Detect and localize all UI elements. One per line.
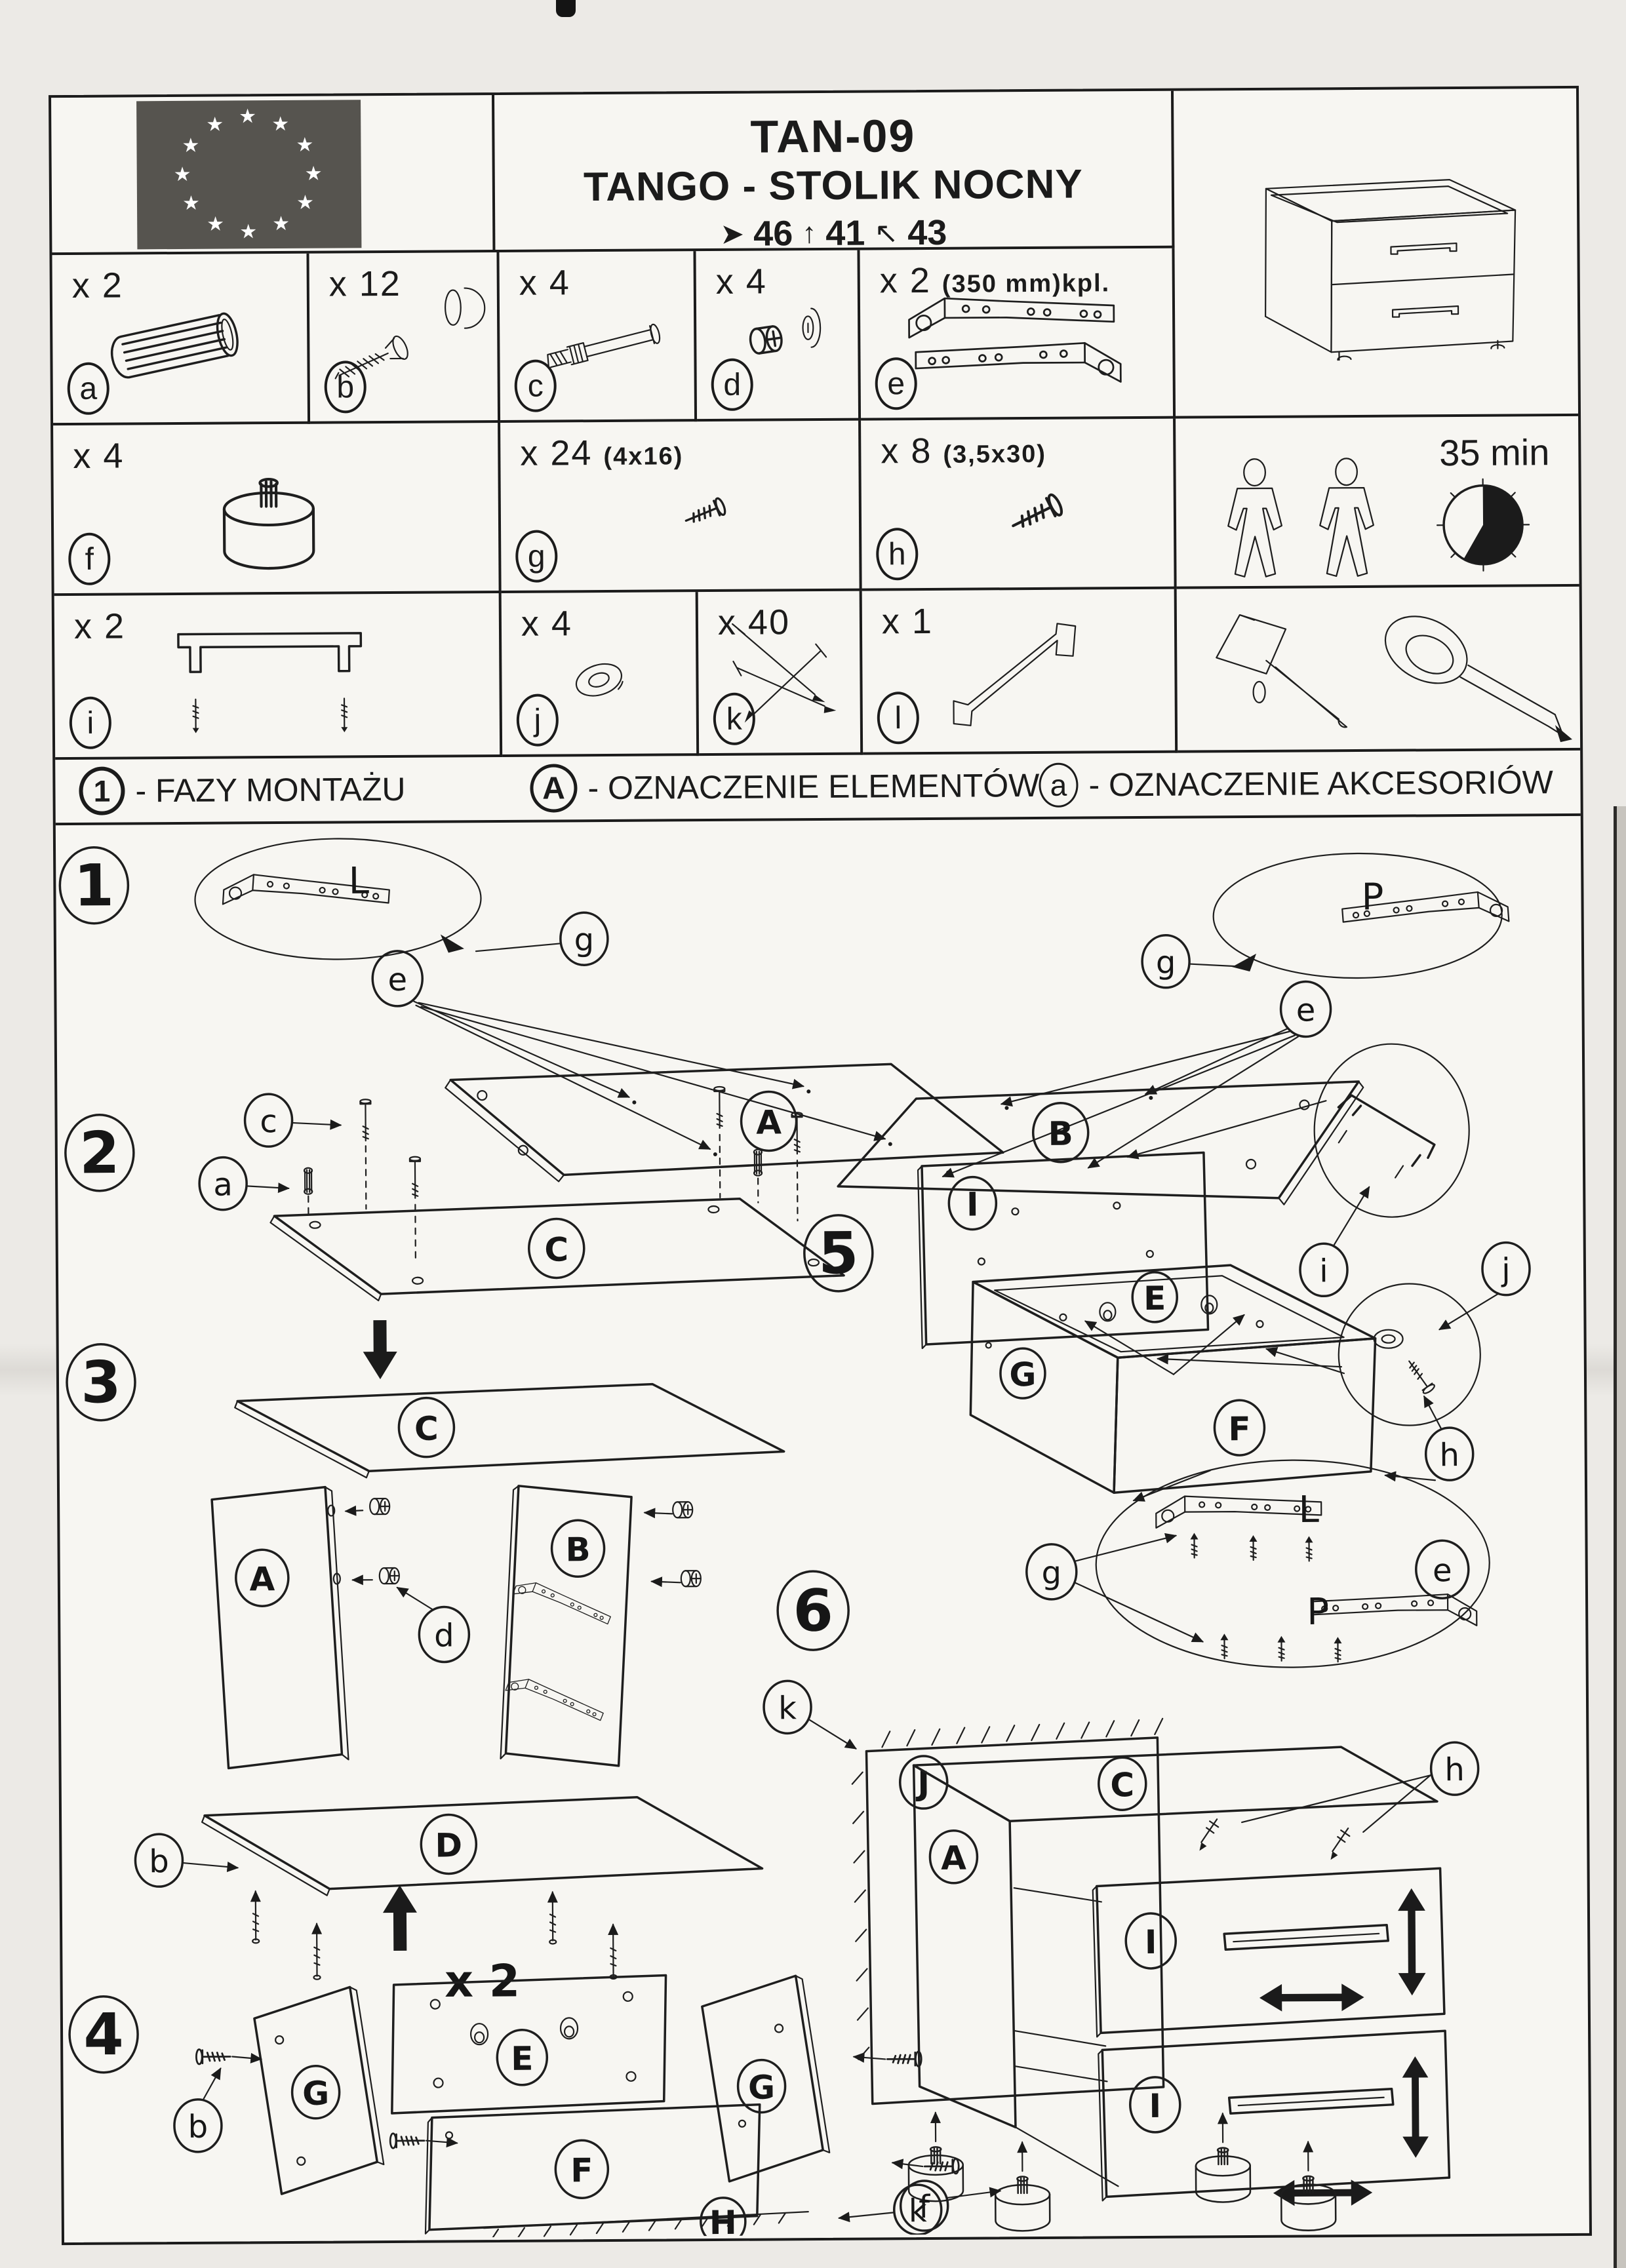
width-arrow-icon: ➤: [720, 217, 744, 250]
step-4: x 2 4 G E G: [69, 1953, 959, 2240]
hammer-screwdriver-icon: [1177, 587, 1581, 753]
eu-star-icon: ★: [239, 107, 256, 127]
panel-label-H: H: [709, 2204, 737, 2240]
legend-elements: A - OZNACZENIE ELEMENTÓW: [530, 754, 1039, 820]
eu-star-icon: ★: [296, 136, 313, 155]
effort-cell: 35 min: [1176, 416, 1579, 589]
foot-icon: [53, 423, 499, 595]
callout-b: b: [188, 2109, 208, 2145]
step-1-number: 1: [73, 851, 114, 919]
part-badge-g: g: [515, 530, 557, 582]
callout-a: a: [213, 1166, 233, 1203]
part-badge-c: c: [514, 359, 556, 412]
panel-label-G: G: [748, 2068, 775, 2106]
callout-e: e: [1296, 992, 1316, 1028]
depth-arrow-icon: ↖: [874, 216, 898, 250]
callout-h: h: [1439, 1437, 1459, 1474]
callout-d: d: [434, 1617, 454, 1654]
slide-mark-right: P: [1361, 876, 1383, 918]
part-cell-a: x 2 a: [52, 254, 310, 425]
eu-star-icon: ★: [174, 165, 191, 185]
eu-star-icon: ★: [305, 165, 323, 184]
panel-label-G: G: [1009, 1356, 1036, 1394]
step-1: 1 L e g A: [60, 832, 1511, 1212]
eu-star-icon: ★: [271, 115, 289, 134]
dimension-depth: 43: [907, 212, 947, 253]
callout-g: g: [1156, 945, 1176, 981]
eu-star-icon: ★: [207, 215, 224, 235]
product-image-cell: [1174, 88, 1578, 419]
callout-i: i: [1319, 1253, 1328, 1289]
callout-f: f: [919, 2189, 930, 2225]
panel-label-F: F: [570, 2151, 593, 2189]
callout-h: h: [1444, 1751, 1465, 1788]
callout-g: g: [1041, 1555, 1061, 1592]
eu-star-icon: ★: [206, 115, 224, 135]
scanned-instruction-page: ★ ★ ★ ★ ★ ★ ★ ★ ★ ★ ★ ★ TAN-09 TANGO - S…: [0, 0, 1626, 2268]
part-badge-l: l: [877, 692, 919, 744]
phase-symbol: 1: [79, 766, 125, 815]
step-6-number: 6: [793, 1576, 833, 1644]
step-3: 3 C A d: [66, 1318, 787, 1982]
panel-label-D: D: [435, 1826, 462, 1864]
part-cell-f: x 4 f: [53, 423, 502, 596]
product-title: TANGO - STOLIK NOCNY: [495, 161, 1172, 211]
legend-elements-label: - OZNACZENIE ELEMENTÓW: [587, 766, 1039, 807]
step-5: 5 I i j: [803, 1043, 1531, 1502]
panel-label-B: B: [1048, 1115, 1073, 1153]
panel-label-I: I: [1145, 1923, 1157, 1961]
element-symbol: A: [530, 764, 577, 812]
callout-e: e: [1433, 1552, 1452, 1589]
panel-label-A: A: [249, 1560, 275, 1598]
slide-detail: L P g e: [1026, 1459, 1490, 1669]
part-badge-k: k: [713, 693, 755, 745]
part-badge-d: d: [711, 359, 753, 411]
part-badge-i: i: [69, 697, 111, 749]
dimension-width: 46: [753, 213, 793, 254]
step-2: 2 c a: [65, 1086, 844, 1302]
logo-cell: ★ ★ ★ ★ ★ ★ ★ ★ ★ ★ ★ ★: [51, 95, 495, 255]
part-cell-k: x 40 k: [698, 591, 863, 756]
callout-e: e: [387, 962, 407, 998]
paper-edge-shade: [1617, 806, 1626, 2268]
part-cell-h: x 8 (3,5x30) h: [861, 419, 1177, 591]
callout-j: j: [1501, 1252, 1511, 1289]
step-3-number: 3: [81, 1348, 121, 1416]
panel-label-A: A: [756, 1103, 782, 1141]
slide-mark-left: L: [1298, 1489, 1319, 1531]
tools-cell: [1177, 587, 1581, 753]
part-cell-d: x 4 d: [696, 250, 861, 422]
part-cell-i: x 2 i: [54, 593, 503, 760]
instruction-sheet: ★ ★ ★ ★ ★ ★ ★ ★ ★ ★ ★ ★ TAN-09 TANGO - S…: [49, 86, 1592, 2245]
part-cell-l: x 1 l: [862, 589, 1178, 755]
accessory-symbol: a: [1039, 763, 1078, 808]
part-badge-f: f: [68, 533, 110, 585]
step-6: 6 k J C A h: [763, 1567, 1481, 2234]
dimension-height: 41: [825, 213, 865, 254]
step-2-number: 2: [79, 1119, 120, 1186]
panel-label-I: I: [1149, 2087, 1161, 2125]
slide-mark-right: P: [1307, 1591, 1329, 1633]
handle-icon: [54, 593, 500, 759]
scan-artifact: [556, 0, 576, 17]
part-cell-c: x 4 c: [499, 251, 697, 423]
part-cell-e: x 2 (350 mm)kpl. e: [860, 248, 1176, 421]
legend-row: 1 - FAZY MONTAŻU A - OZNACZENIE ELEMENTÓ…: [55, 751, 1581, 825]
title-cell: TAN-09 TANGO - STOLIK NOCNY ➤ 46 ↑ 41 ↖ …: [494, 91, 1174, 252]
paper-edge-line: [1614, 806, 1617, 2268]
legend-accessories-label: - OZNACZENIE AKCESORIÓW: [1088, 763, 1553, 804]
panel-label-G: G: [302, 2075, 329, 2113]
assembly-diagram: 1 L e g A: [56, 816, 1589, 2240]
eu-star-icon: ★: [182, 194, 200, 214]
part-badge-a: a: [67, 362, 109, 415]
panel-label-I: I: [966, 1186, 979, 1224]
panel-label-C: C: [544, 1230, 568, 1268]
legend-phases: 1 - FAZY MONTAŻU: [79, 758, 406, 823]
panel-label-B: B: [565, 1531, 590, 1569]
panel-label-A: A: [941, 1839, 966, 1877]
eu-star-icon: ★: [182, 136, 199, 156]
panel-label-E: E: [511, 2040, 534, 2078]
height-arrow-icon: ↑: [802, 217, 816, 250]
part-badge-e: e: [875, 357, 917, 410]
callout-g: g: [574, 922, 594, 958]
two-people-clock-icon: [1176, 416, 1579, 589]
nightstand-drawing: [1174, 88, 1578, 419]
legend-accessories: a - OZNACZENIE AKCESORIÓW: [1039, 751, 1553, 817]
part-cell-g: x 24 (4x16) g: [500, 421, 862, 593]
eu-star-icon: ★: [239, 222, 257, 242]
part-badge-b: b: [324, 361, 366, 413]
part-badge-j: j: [517, 694, 559, 746]
legend-phases-label: - FAZY MONTAŻU: [135, 770, 405, 810]
panel-label-C: C: [1110, 1766, 1134, 1804]
panel-label-E: E: [1143, 1280, 1166, 1318]
eu-flag: ★ ★ ★ ★ ★ ★ ★ ★ ★ ★ ★ ★: [136, 100, 361, 249]
eu-star-icon: ★: [296, 193, 314, 213]
slide-mark-left: L: [349, 860, 370, 903]
callout-c: c: [260, 1103, 277, 1140]
step-4-number: 4: [83, 2001, 124, 2068]
callout-b: b: [149, 1843, 169, 1880]
step-5-number: 5: [818, 1219, 859, 1287]
eu-star-icon: ★: [272, 214, 290, 234]
callout-k: k: [778, 1690, 797, 1727]
panel-label-C: C: [414, 1410, 439, 1448]
part-cell-j: x 4 j: [502, 592, 700, 757]
panel-label-F: F: [1228, 1410, 1251, 1448]
product-code: TAN-09: [494, 108, 1171, 165]
part-badge-h: h: [876, 528, 918, 580]
part-cell-b: x 12 b: [309, 252, 500, 424]
